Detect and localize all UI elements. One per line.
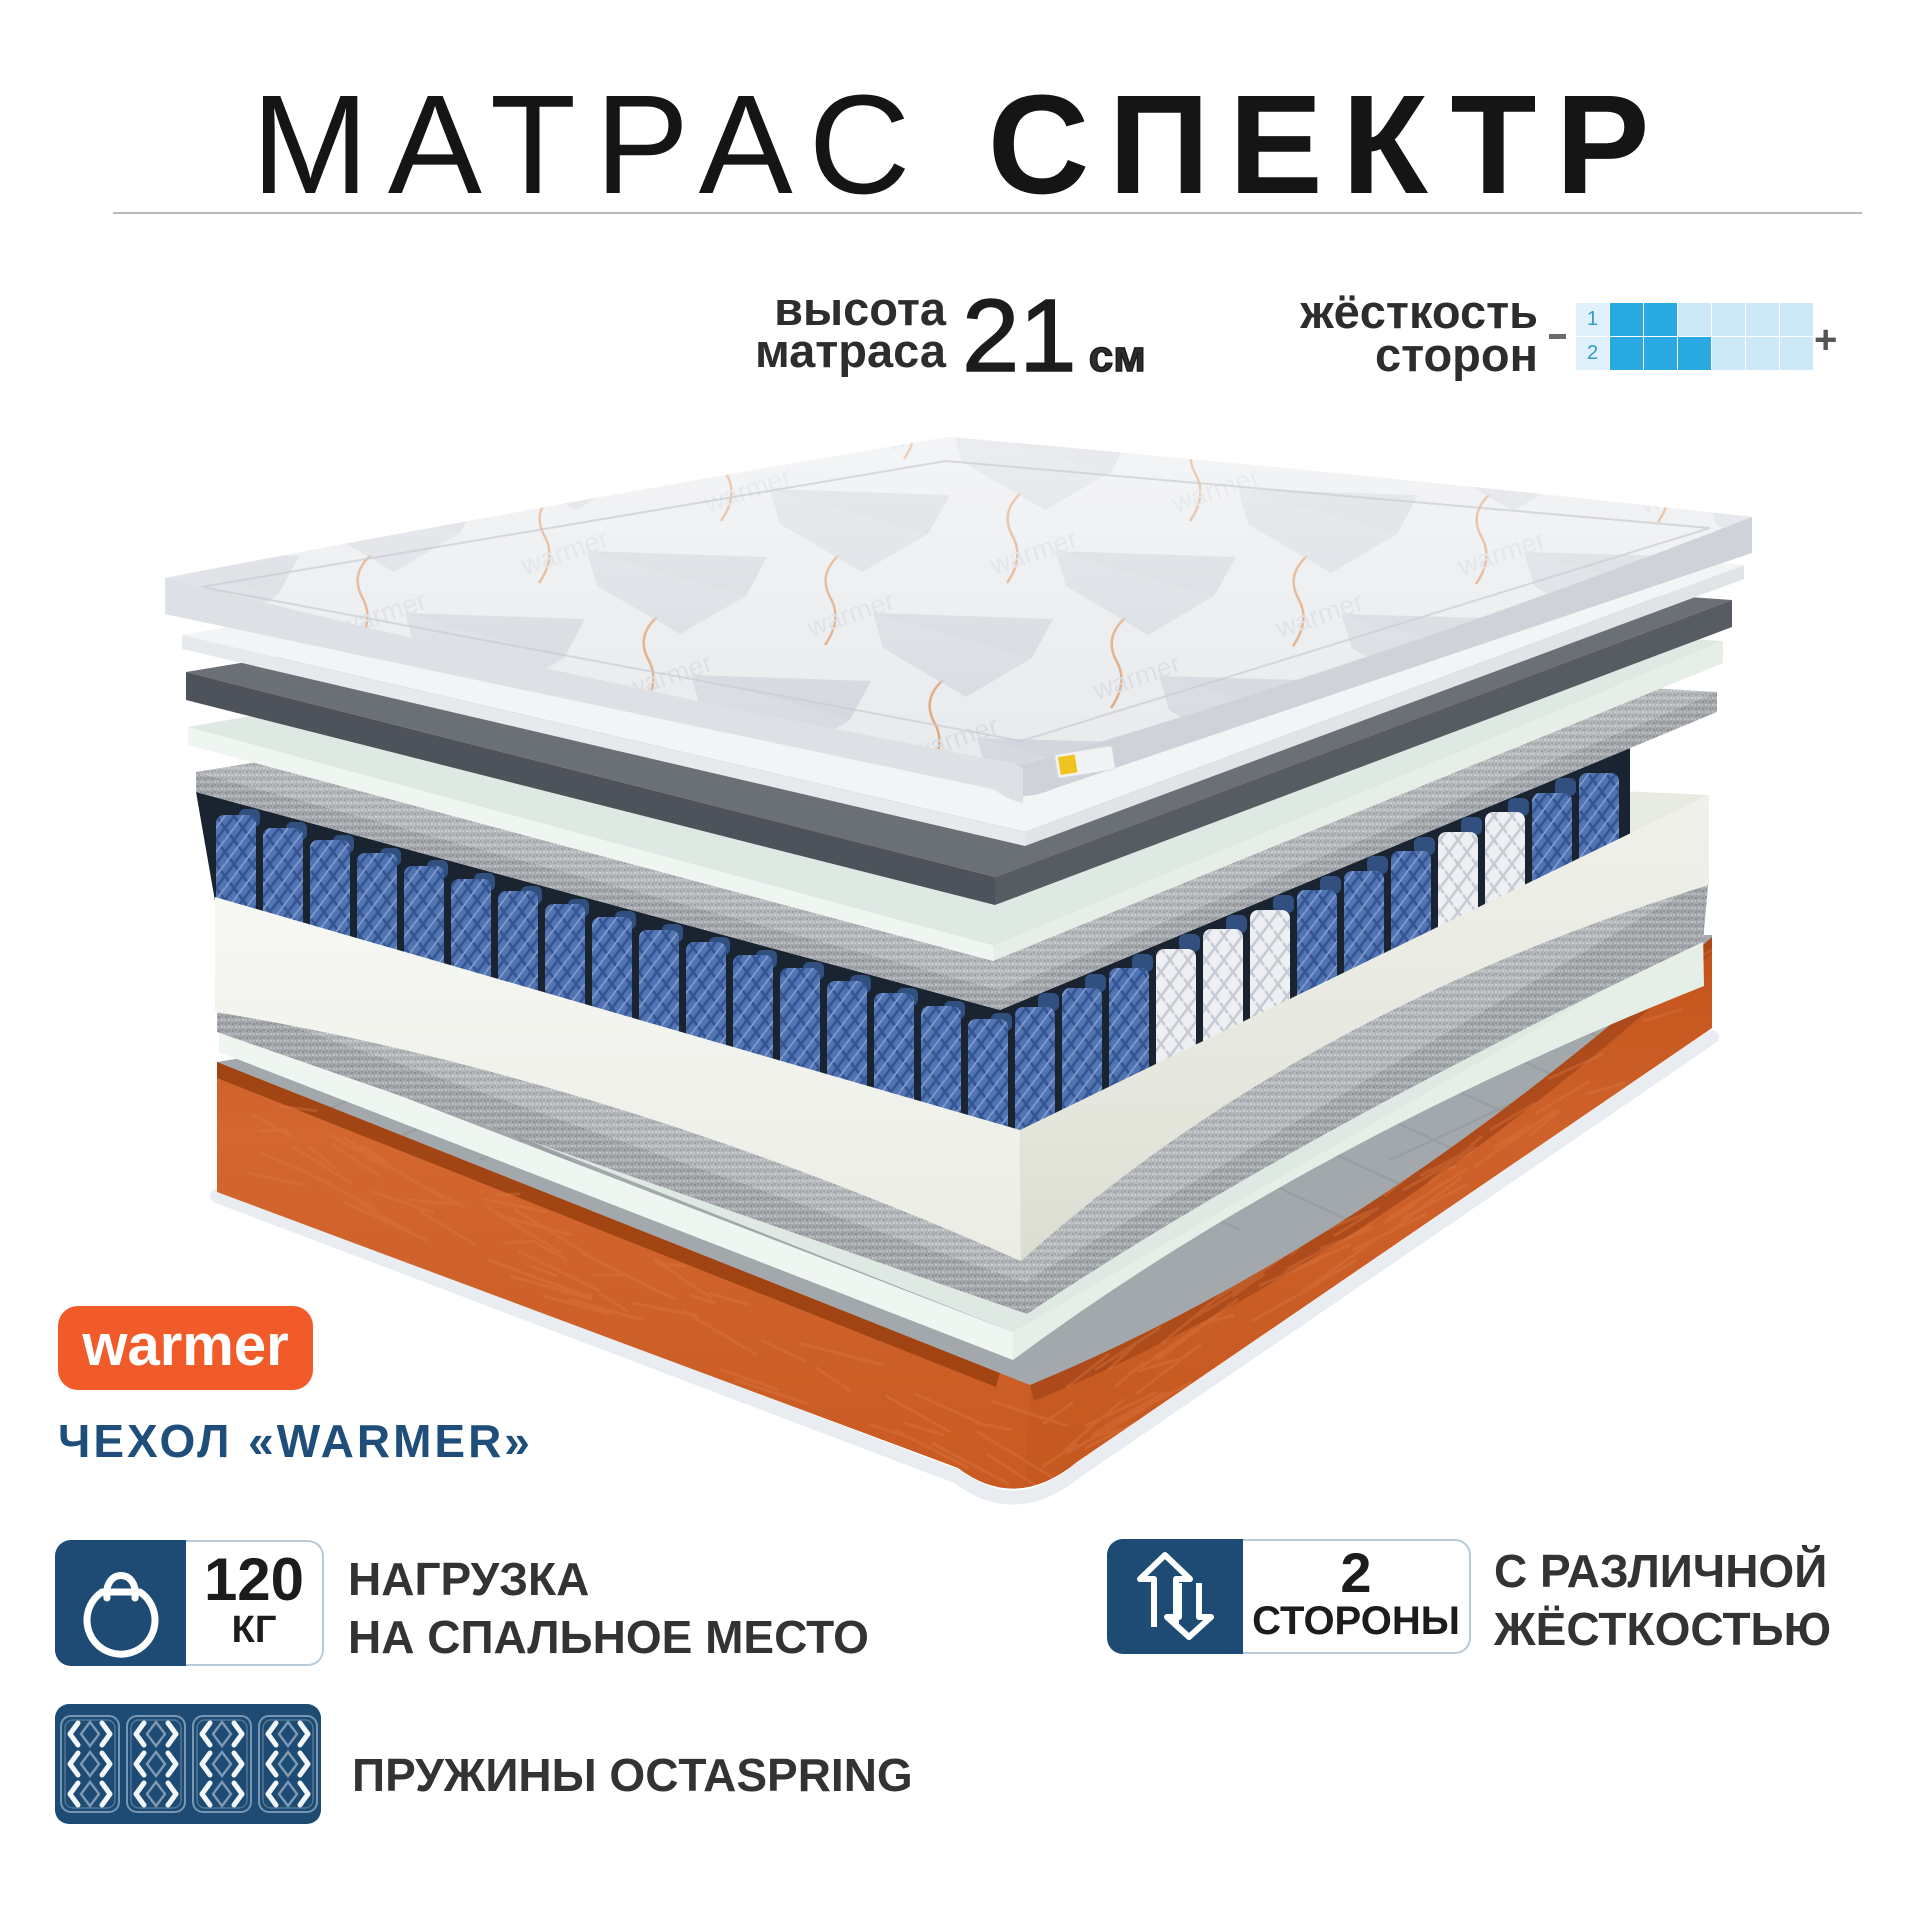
- svg-text:warmer: warmer: [1063, 337, 1159, 395]
- svg-text:warmer: warmer: [595, 337, 691, 395]
- svg-text:warmer: warmer: [777, 275, 873, 333]
- svg-text:warmer: warmer: [1818, 400, 1914, 458]
- svg-text:warmer: warmer: [48, 523, 144, 581]
- svg-text:warmer: warmer: [413, 399, 509, 457]
- svg-text:warmer: warmer: [1349, 399, 1445, 457]
- svg-text:warmer: warmer: [230, 461, 326, 519]
- svg-text:warmer: warmer: [1532, 337, 1628, 395]
- svg-text:warmer: warmer: [1246, 275, 1342, 333]
- svg-text:warmer: warmer: [1739, 586, 1835, 644]
- svg-text:warmer: warmer: [960, 213, 1056, 271]
